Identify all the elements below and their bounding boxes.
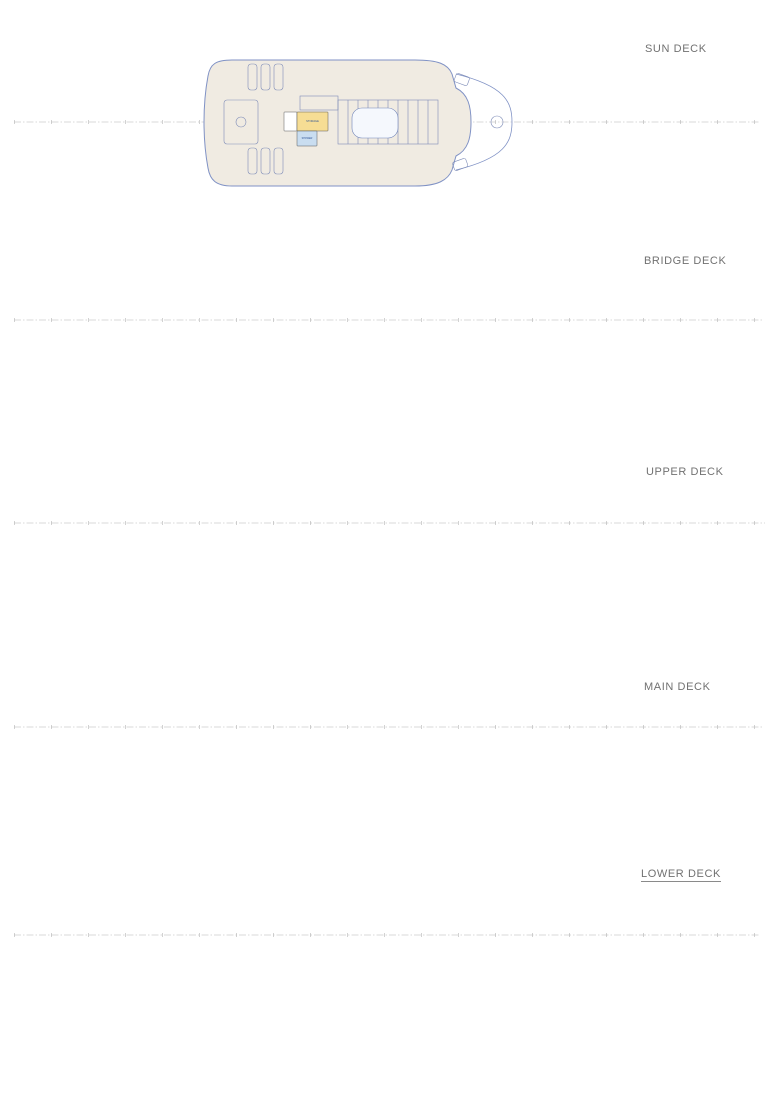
- deck-label-sun: SUN DECK: [645, 43, 707, 55]
- plan-drawing: STORAGESHOWER: [0, 0, 778, 1100]
- room-label: SHOWER: [302, 137, 313, 140]
- deck-label-lower: LOWER DECK: [641, 868, 721, 882]
- sun-deck-hull: [204, 60, 471, 186]
- room-label: STORAGE: [306, 119, 319, 123]
- deck-label-upper: UPPER DECK: [646, 466, 724, 478]
- room: [284, 112, 297, 131]
- yacht-deck-plans: STORAGESHOWER OWNER'S LOUNGEWCSTORAGEFOY…: [0, 0, 778, 1100]
- sun-deck-plan: STORAGESHOWER: [204, 60, 512, 186]
- deck-label-bridge: BRIDGE DECK: [644, 255, 726, 267]
- centerlines: [14, 122, 765, 935]
- deck-label-main: MAIN DECK: [644, 681, 711, 693]
